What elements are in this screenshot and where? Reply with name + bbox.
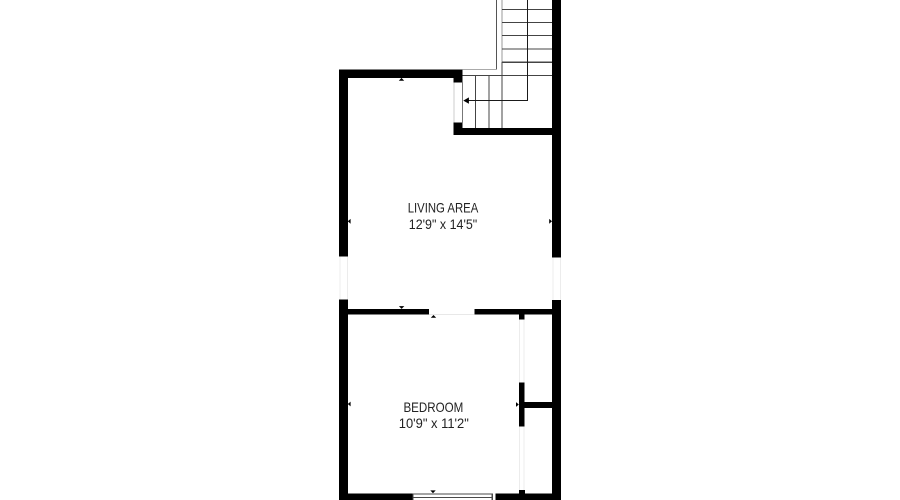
svg-text:LIVING AREA: LIVING AREA [408, 201, 479, 216]
svg-text:10'9" x 11'2": 10'9" x 11'2" [399, 416, 469, 431]
svg-text:BEDROOM: BEDROOM [403, 400, 463, 415]
svg-text:12'9" x 14'5": 12'9" x 14'5" [409, 217, 477, 232]
